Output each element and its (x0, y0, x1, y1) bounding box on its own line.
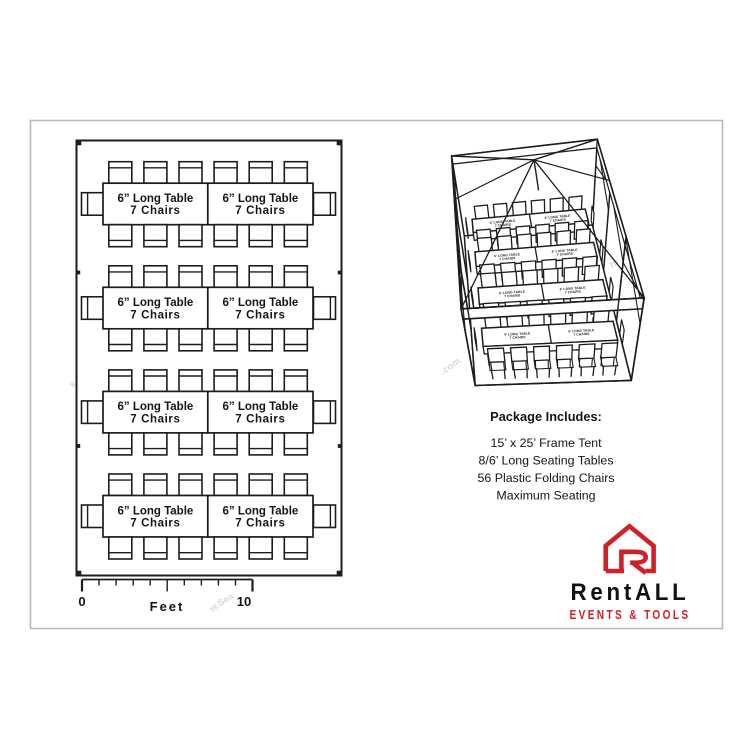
svg-text:Package Includes:: Package Includes: (490, 409, 602, 424)
svg-text:6” Long Table: 6” Long Table (117, 193, 193, 205)
svg-text:0: 0 (78, 594, 85, 609)
svg-text:EVENTS & TOOLS: EVENTS & TOOLS (570, 607, 691, 622)
svg-text:6” Long Table: 6” Long Table (222, 401, 298, 413)
svg-text:7 Chairs: 7 Chairs (130, 309, 180, 321)
svg-text:56 Plastic Folding Chairs: 56 Plastic Folding Chairs (477, 471, 614, 485)
svg-text:7 Chairs: 7 Chairs (130, 518, 180, 530)
svg-text:6” Long Table: 6” Long Table (222, 193, 298, 205)
svg-text:6” Long Table: 6” Long Table (117, 505, 193, 517)
svg-text:6” Long Table: 6” Long Table (222, 297, 298, 309)
svg-text:8/6’ Long Seating Tables: 8/6’ Long Seating Tables (478, 454, 613, 468)
svg-text:7 Chairs: 7 Chairs (235, 309, 285, 321)
svg-text:RentALL: RentALL (571, 579, 690, 606)
svg-text:7 Chairs: 7 Chairs (130, 205, 180, 217)
svg-text:7 Chairs: 7 Chairs (235, 205, 285, 217)
svg-text:6” Long Table: 6” Long Table (117, 401, 193, 413)
svg-text:6” Long Table: 6” Long Table (117, 297, 193, 309)
svg-text:Maximum Seating: Maximum Seating (496, 489, 595, 503)
svg-text:10: 10 (237, 594, 251, 609)
svg-text:7 Chairs: 7 Chairs (235, 413, 285, 425)
svg-text:6” Long Table: 6” Long Table (222, 505, 298, 517)
svg-text:Feet: Feet (150, 599, 185, 614)
svg-text:7 Chairs: 7 Chairs (235, 518, 285, 530)
svg-text:7 CHAIRS: 7 CHAIRS (509, 335, 526, 340)
svg-text:7 Chairs: 7 Chairs (130, 413, 180, 425)
svg-text:15’ x 25’ Frame Tent: 15’ x 25’ Frame Tent (490, 436, 602, 450)
